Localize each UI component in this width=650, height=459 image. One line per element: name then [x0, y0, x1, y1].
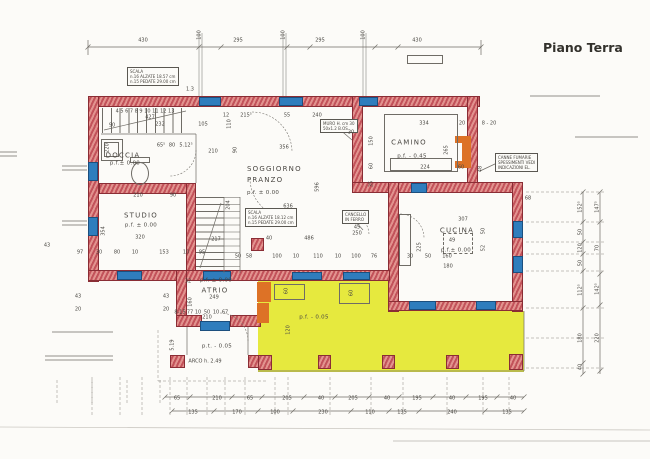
- dimension-label: 80: [114, 251, 120, 256]
- dimension-label: 30: [348, 131, 354, 136]
- dimension-label: 180: [443, 265, 453, 270]
- dimension-label: 68: [525, 197, 531, 202]
- floor-plan-canvas: Piano Terra: [0, 0, 650, 459]
- dimension-label: 80: [169, 144, 175, 149]
- dimension-label: 52: [482, 245, 487, 251]
- dimension-label: 427: [145, 116, 155, 121]
- dimension-label: 43: [75, 295, 81, 300]
- dimension-label: 210: [202, 316, 212, 321]
- dimension-label: 65⁵: [157, 144, 165, 149]
- dimension-label: 232: [155, 123, 165, 128]
- dimension-label: 65: [247, 397, 253, 402]
- dimension-label: 220: [596, 333, 601, 343]
- dimension-label: 230: [318, 411, 328, 416]
- dimension-label: 48: [479, 166, 484, 172]
- dimension-label: 76: [371, 255, 377, 260]
- dimension-label: 5.12⁵: [179, 144, 192, 149]
- dimension-label: 100: [270, 411, 280, 416]
- dimension-label: 160: [442, 255, 452, 260]
- dimension-label: 100: [282, 30, 287, 40]
- dimension-label: 100: [351, 255, 361, 260]
- dimension-label: 50: [235, 255, 241, 260]
- dimension-label: 320: [135, 236, 145, 241]
- dimension-label: 135: [188, 411, 198, 416]
- dimension-labels-layer: 4302952954301001001001.34 5 6 7 8 9 10 1…: [0, 0, 650, 459]
- dimension-label: 20: [459, 122, 465, 127]
- dimension-label: 30: [96, 251, 102, 256]
- dimension-label: 70: [596, 245, 601, 251]
- dimension-label: 205: [282, 397, 292, 402]
- dimension-label: 225: [418, 242, 423, 252]
- dimension-label: 90: [234, 147, 239, 153]
- dimension-label: 210: [212, 397, 222, 402]
- dimension-label: 100: [198, 30, 203, 40]
- dimension-label: 43: [163, 295, 169, 300]
- dimension-label: 120: [579, 243, 584, 253]
- dimension-label: 135: [502, 411, 512, 416]
- dimension-label: 636: [283, 205, 293, 210]
- dimension-label: 224: [420, 166, 430, 171]
- dimension-label: 265: [445, 145, 450, 155]
- dimension-label: 50: [579, 260, 584, 266]
- dimension-label: 65: [174, 397, 180, 402]
- dimension-label: 40: [449, 397, 455, 402]
- dimension-label: 43: [44, 244, 50, 249]
- dimension-label: 195: [412, 397, 422, 402]
- dimension-label: 60: [285, 288, 290, 294]
- dimension-label: 90: [170, 194, 176, 199]
- dimension-label: 210: [208, 150, 218, 155]
- dimension-label: 55: [284, 114, 290, 119]
- dimension-label: 50: [482, 228, 487, 234]
- dimension-label: 150: [370, 136, 375, 146]
- dimension-label: 95: [199, 251, 205, 256]
- dimension-label: 97: [77, 251, 83, 256]
- dimension-label: 334: [419, 122, 429, 127]
- dimension-label: 295: [233, 39, 243, 44]
- dimension-label: 430: [412, 39, 422, 44]
- dimension-label: 5.19: [171, 339, 176, 350]
- dimension-label: 40: [384, 397, 390, 402]
- dimension-label: 215⁵: [240, 114, 252, 119]
- dimension-label: 90: [109, 124, 115, 129]
- dimension-label: 58: [246, 255, 252, 260]
- dimension-label: 32: [185, 280, 191, 285]
- dimension-label: 430: [138, 39, 148, 44]
- dimension-label: 110: [313, 255, 323, 260]
- dimension-label: 10: [213, 311, 219, 316]
- dimension-label: 10: [293, 255, 299, 260]
- dimension-label: 295: [315, 39, 325, 44]
- dimension-label: 50: [579, 229, 584, 235]
- dimension-label: 153: [159, 251, 169, 256]
- dimension-label: 10: [195, 311, 201, 316]
- dimension-label: 354: [102, 226, 107, 236]
- dimension-label: 356: [279, 146, 289, 151]
- dimension-label: 249: [209, 296, 219, 301]
- dimension-label: 49: [449, 239, 455, 244]
- dimension-label: 486: [304, 237, 314, 242]
- dimension-label: 77: [187, 311, 193, 316]
- dimension-label: 220: [106, 143, 111, 153]
- dimension-label: 195: [478, 397, 488, 402]
- dimension-label: 20: [75, 308, 81, 313]
- dimension-label: 160: [189, 297, 194, 307]
- dimension-label: 50: [425, 255, 431, 260]
- dimension-label: 135: [397, 411, 407, 416]
- dimension-label: 240: [312, 114, 322, 119]
- dimension-label: 205: [348, 397, 358, 402]
- dimension-label: 250: [352, 232, 362, 237]
- dimension-label: 100: [272, 255, 282, 260]
- dimension-label: 120: [287, 325, 292, 335]
- dimension-label: 170: [232, 411, 242, 416]
- dimension-label: 105: [198, 123, 208, 128]
- dimension-label: 110: [365, 411, 375, 416]
- dimension-label: 8-15: [174, 311, 185, 316]
- dimension-label: 10: [335, 255, 341, 260]
- dimension-label: 30: [407, 255, 413, 260]
- dimension-label: 67: [222, 311, 228, 316]
- dimension-label: 307: [458, 218, 468, 223]
- dimension-label: 210: [133, 194, 143, 199]
- dimension-label: 40: [318, 397, 324, 402]
- dimension-label: 1.3: [186, 88, 194, 93]
- dimension-label: 596: [316, 182, 321, 192]
- dimension-label: 60: [350, 290, 355, 296]
- dimension-label: 35: [370, 181, 375, 187]
- dimension-label: 60: [458, 166, 464, 171]
- dimension-label: 40: [510, 397, 516, 402]
- dimension-label: 204: [227, 200, 232, 210]
- dimension-label: 8 - 20: [482, 122, 497, 127]
- dimension-label: 10: [183, 251, 189, 256]
- dimension-label: 240: [447, 411, 457, 416]
- dimension-label: 217: [211, 238, 221, 243]
- dimension-label: 110: [228, 119, 233, 129]
- dimension-label: 147⁵: [596, 201, 601, 213]
- dimension-label: 60: [370, 163, 375, 169]
- dimension-label: 180: [579, 333, 584, 343]
- dimension-label: 152⁵: [579, 201, 584, 213]
- dimension-label: 112⁵: [579, 284, 584, 296]
- dimension-label: 40: [266, 237, 272, 242]
- dimension-label: 40: [579, 364, 584, 370]
- dimension-label: 12: [223, 114, 229, 119]
- dimension-label: 142⁵: [596, 283, 601, 295]
- dimension-label: 100: [362, 30, 367, 40]
- dimension-label: 20: [163, 308, 169, 313]
- dimension-label: 10: [132, 251, 138, 256]
